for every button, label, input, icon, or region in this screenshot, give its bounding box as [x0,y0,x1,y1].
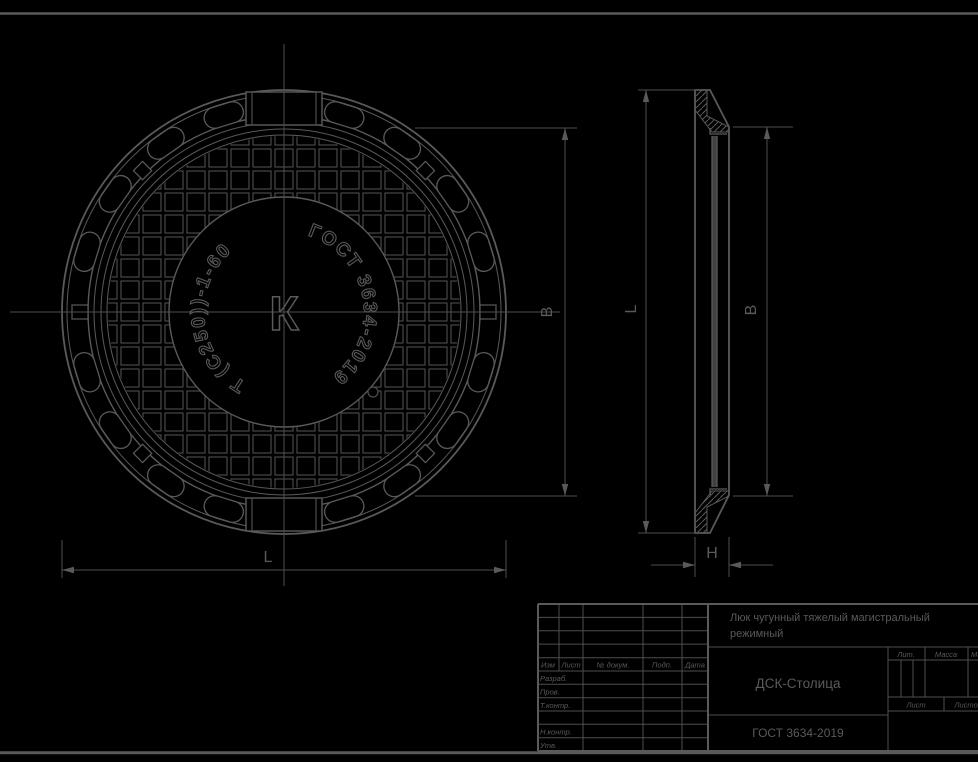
flange-hatch-bottom [695,491,729,533]
pick-hole [368,387,378,397]
arrowhead [562,484,568,496]
arrowhead [643,90,649,102]
plan-dim-L-label: L [264,549,273,566]
side-dim-B-label: B [743,305,760,316]
row-tkontr: Т.контр. [540,701,570,710]
col-ndokum: № докум. [596,661,629,670]
side-dim-L [638,90,700,533]
title-block-right-labels: Лит. Масса Масштаб Лист Листов [896,650,978,710]
rim-slot [433,171,473,216]
title-block-row-labels: Разраб. Пров. Т.контр. Н.контр. Утв. [539,674,572,750]
rim-square-marker [133,161,151,179]
rim-slot [433,408,473,453]
rim-square-marker [133,444,151,462]
rim-slot [380,461,425,501]
side-dim-L-label: L [623,304,640,313]
col-list: Лист [560,661,580,670]
title-block-header-cols: Изм Лист № докум. Подп. Дата [541,661,705,670]
mass-label: Масса [935,650,957,659]
arrowhead [562,128,568,140]
arrowhead [494,567,506,573]
rim-slot [95,408,135,453]
row-utv: Утв. [539,741,557,750]
rim-slot [95,171,135,216]
title-block: Изм Лист № докум. Подп. Дата Разраб. Про… [538,604,978,751]
standard-number: ГОСТ 3634-2019 [752,726,844,740]
cad-drawing-canvas: Т (С250))-1-60 ГОСТ 3634-2019 К L B L [0,0,978,762]
col-data: Дата [684,661,705,670]
row-prov: Пров. [540,688,560,697]
row-nkontr: Н.контр. [540,728,572,737]
row-razrab: Разраб. [540,674,567,683]
part-description-line1: Люк чугунный тяжелый магистральный [730,612,930,624]
cover-section-lines [710,128,727,495]
col-podp: Подп. [652,661,672,670]
cover-edge-bar [712,136,717,487]
arrowhead [683,562,695,568]
col-izm: Изм [541,661,555,670]
sheets-label: Листов [953,701,978,710]
side-dim-H-label: H [706,545,718,562]
rim-slot [143,461,188,501]
side-dim-B [733,127,793,496]
sheet-label: Лист [905,701,925,710]
rim-square-marker [416,444,434,462]
flange-hatch-top [695,90,729,132]
company-name: ДСК-Столица [756,676,841,691]
part-description-line2: режимный [730,628,783,640]
center-letter: К [269,288,299,341]
rim-slot [143,123,188,163]
scale-label: Масштаб [971,650,978,659]
arrowhead [62,567,74,573]
arrowhead [729,562,741,568]
arrowhead [764,484,770,496]
drawing-sheet: Т (С250))-1-60 ГОСТ 3634-2019 К L B L [0,0,978,762]
lit-label: Лит. [896,650,915,659]
arrowhead [764,127,770,139]
plan-view: Т (С250))-1-60 ГОСТ 3634-2019 К L B [10,44,577,586]
side-view: L B H [623,90,793,577]
plan-dim-B-label: B [539,307,556,318]
rim-square-marker [416,161,434,179]
rim-slot [380,123,425,163]
arrowhead [643,521,649,533]
